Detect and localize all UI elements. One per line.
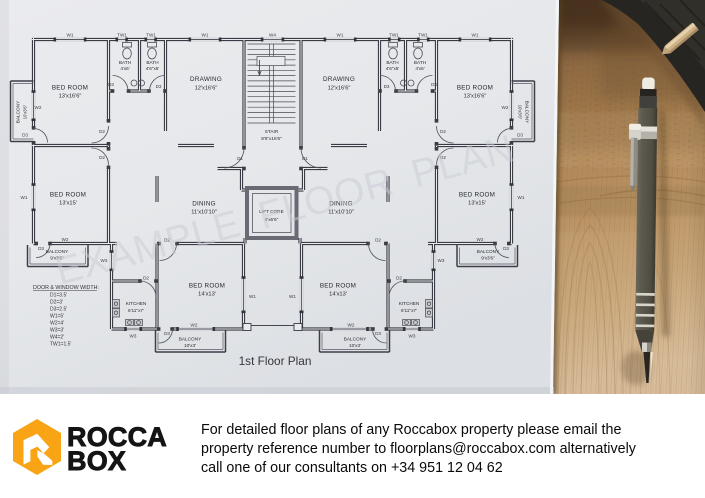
svg-text:13'x16'6": 13'x16'6" [464,94,487,100]
svg-text:D3: D3 [164,331,170,336]
svg-text:STAIR: STAIR [265,129,279,134]
svg-text:D2: D2 [143,276,149,281]
svg-text:BED ROOM: BED ROOM [50,192,86,199]
svg-text:BATH: BATH [146,60,158,65]
svg-text:9'x3'6": 9'x3'6" [481,256,495,261]
svg-text:BALCONY: BALCONY [16,100,21,123]
svg-text:BED ROOM: BED ROOM [189,283,225,290]
svg-text:D3: D3 [156,84,162,89]
svg-text:BATH: BATH [414,60,426,65]
svg-text:D1: D1 [237,156,243,161]
svg-text:BALCONY: BALCONY [179,337,202,342]
svg-text:4'6"x6': 4'6"x6' [146,66,160,71]
svg-text:12'x16'6": 12'x16'6" [195,86,218,92]
svg-text:W2: W2 [35,105,42,110]
svg-text:W3=3': W3=3' [50,328,64,334]
svg-text:W4=2': W4=2' [50,335,64,341]
svg-text:W2: W2 [348,323,355,328]
svg-text:KITCHEN: KITCHEN [399,301,420,306]
svg-text:W2: W2 [502,105,509,110]
svg-text:TW1=1.5': TW1=1.5' [50,342,71,348]
svg-text:D3=2.5': D3=2.5' [50,307,67,313]
svg-text:14'x13': 14'x13' [198,292,216,298]
svg-text:DRAWING: DRAWING [190,76,222,83]
svg-text:D3: D3 [22,133,28,138]
svg-text:4'x6': 4'x6' [415,66,424,71]
svg-text:BALCONY: BALCONY [477,249,500,254]
svg-text:KITCHEN: KITCHEN [126,301,147,306]
svg-text:W2=4': W2=4' [50,321,64,327]
svg-text:TW1: TW1 [389,33,399,38]
svg-text:8'6"x16'6": 8'6"x16'6" [261,136,282,141]
svg-text:DRAWING: DRAWING [323,76,355,83]
svg-text:10'x3'6": 10'x3'6" [23,104,28,119]
svg-text:D2=3': D2=3' [50,300,63,306]
svg-text:D3: D3 [517,133,523,138]
svg-text:13'x15': 13'x15' [59,201,77,207]
svg-text:W1: W1 [472,33,479,38]
svg-text:14'x13': 14'x13' [329,292,347,298]
svg-text:BED ROOM: BED ROOM [459,192,495,199]
svg-text:W1: W1 [67,33,74,38]
svg-text:W4: W4 [269,33,276,38]
svg-text:W2: W2 [62,237,69,242]
svg-text:DINING: DINING [192,201,216,208]
svg-text:10'x3': 10'x3' [349,343,361,348]
svg-text:TW1: TW1 [117,33,127,38]
svg-text:4'x6': 4'x6' [120,66,129,71]
svg-text:D2: D2 [375,238,381,243]
svg-text:D2: D2 [396,276,402,281]
svg-text:W3: W3 [438,258,445,263]
svg-text:D2: D2 [99,129,105,134]
svg-text:W1: W1 [202,33,209,38]
svg-text:D3: D3 [431,82,437,87]
svg-text:BATH: BATH [119,60,131,65]
svg-text:W1: W1 [289,294,296,299]
svg-text:W1: W1 [337,33,344,38]
svg-text:13'x16'6": 13'x16'6" [59,94,82,100]
svg-text:BALCONY: BALCONY [344,337,367,342]
svg-text:D1=3.5': D1=3.5' [50,293,67,299]
svg-text:W1: W1 [249,294,256,299]
svg-text:TW1: TW1 [146,33,156,38]
svg-text:10'x3'6": 10'x3'6" [518,105,523,120]
svg-text:D3: D3 [503,246,509,251]
svg-text:12'x16'6": 12'x16'6" [328,86,351,92]
svg-text:BED ROOM: BED ROOM [457,85,493,92]
svg-text:D1: D1 [302,156,308,161]
svg-text:10'x3': 10'x3' [184,343,196,348]
svg-text:6'11"x7': 6'11"x7' [401,308,417,313]
svg-text:BED ROOM: BED ROOM [52,85,88,92]
svg-text:D3: D3 [384,84,390,89]
svg-text:BED ROOM: BED ROOM [320,283,356,290]
svg-text:TW1: TW1 [418,33,428,38]
svg-text:D3: D3 [38,246,44,251]
svg-text:W1: W1 [21,195,28,200]
svg-text:D3: D3 [375,331,381,336]
svg-text:W2: W2 [191,323,198,328]
svg-text:BALCONY: BALCONY [525,101,530,124]
svg-text:W3: W3 [130,334,137,339]
svg-text:W3: W3 [409,334,416,339]
svg-text:W2: W2 [477,237,484,242]
svg-text:W1=5': W1=5' [50,314,64,320]
svg-text:W1: W1 [518,195,525,200]
svg-text:1st Floor Plan: 1st Floor Plan [239,354,312,368]
svg-text:D2: D2 [99,155,105,160]
svg-text:D2: D2 [440,129,446,134]
svg-text:4'6"x6': 4'6"x6' [386,66,400,71]
svg-text:D3: D3 [108,82,114,87]
svg-text:BATH: BATH [386,60,398,65]
svg-text:6'11"x7': 6'11"x7' [128,308,144,313]
svg-text:13'x15': 13'x15' [468,201,486,207]
